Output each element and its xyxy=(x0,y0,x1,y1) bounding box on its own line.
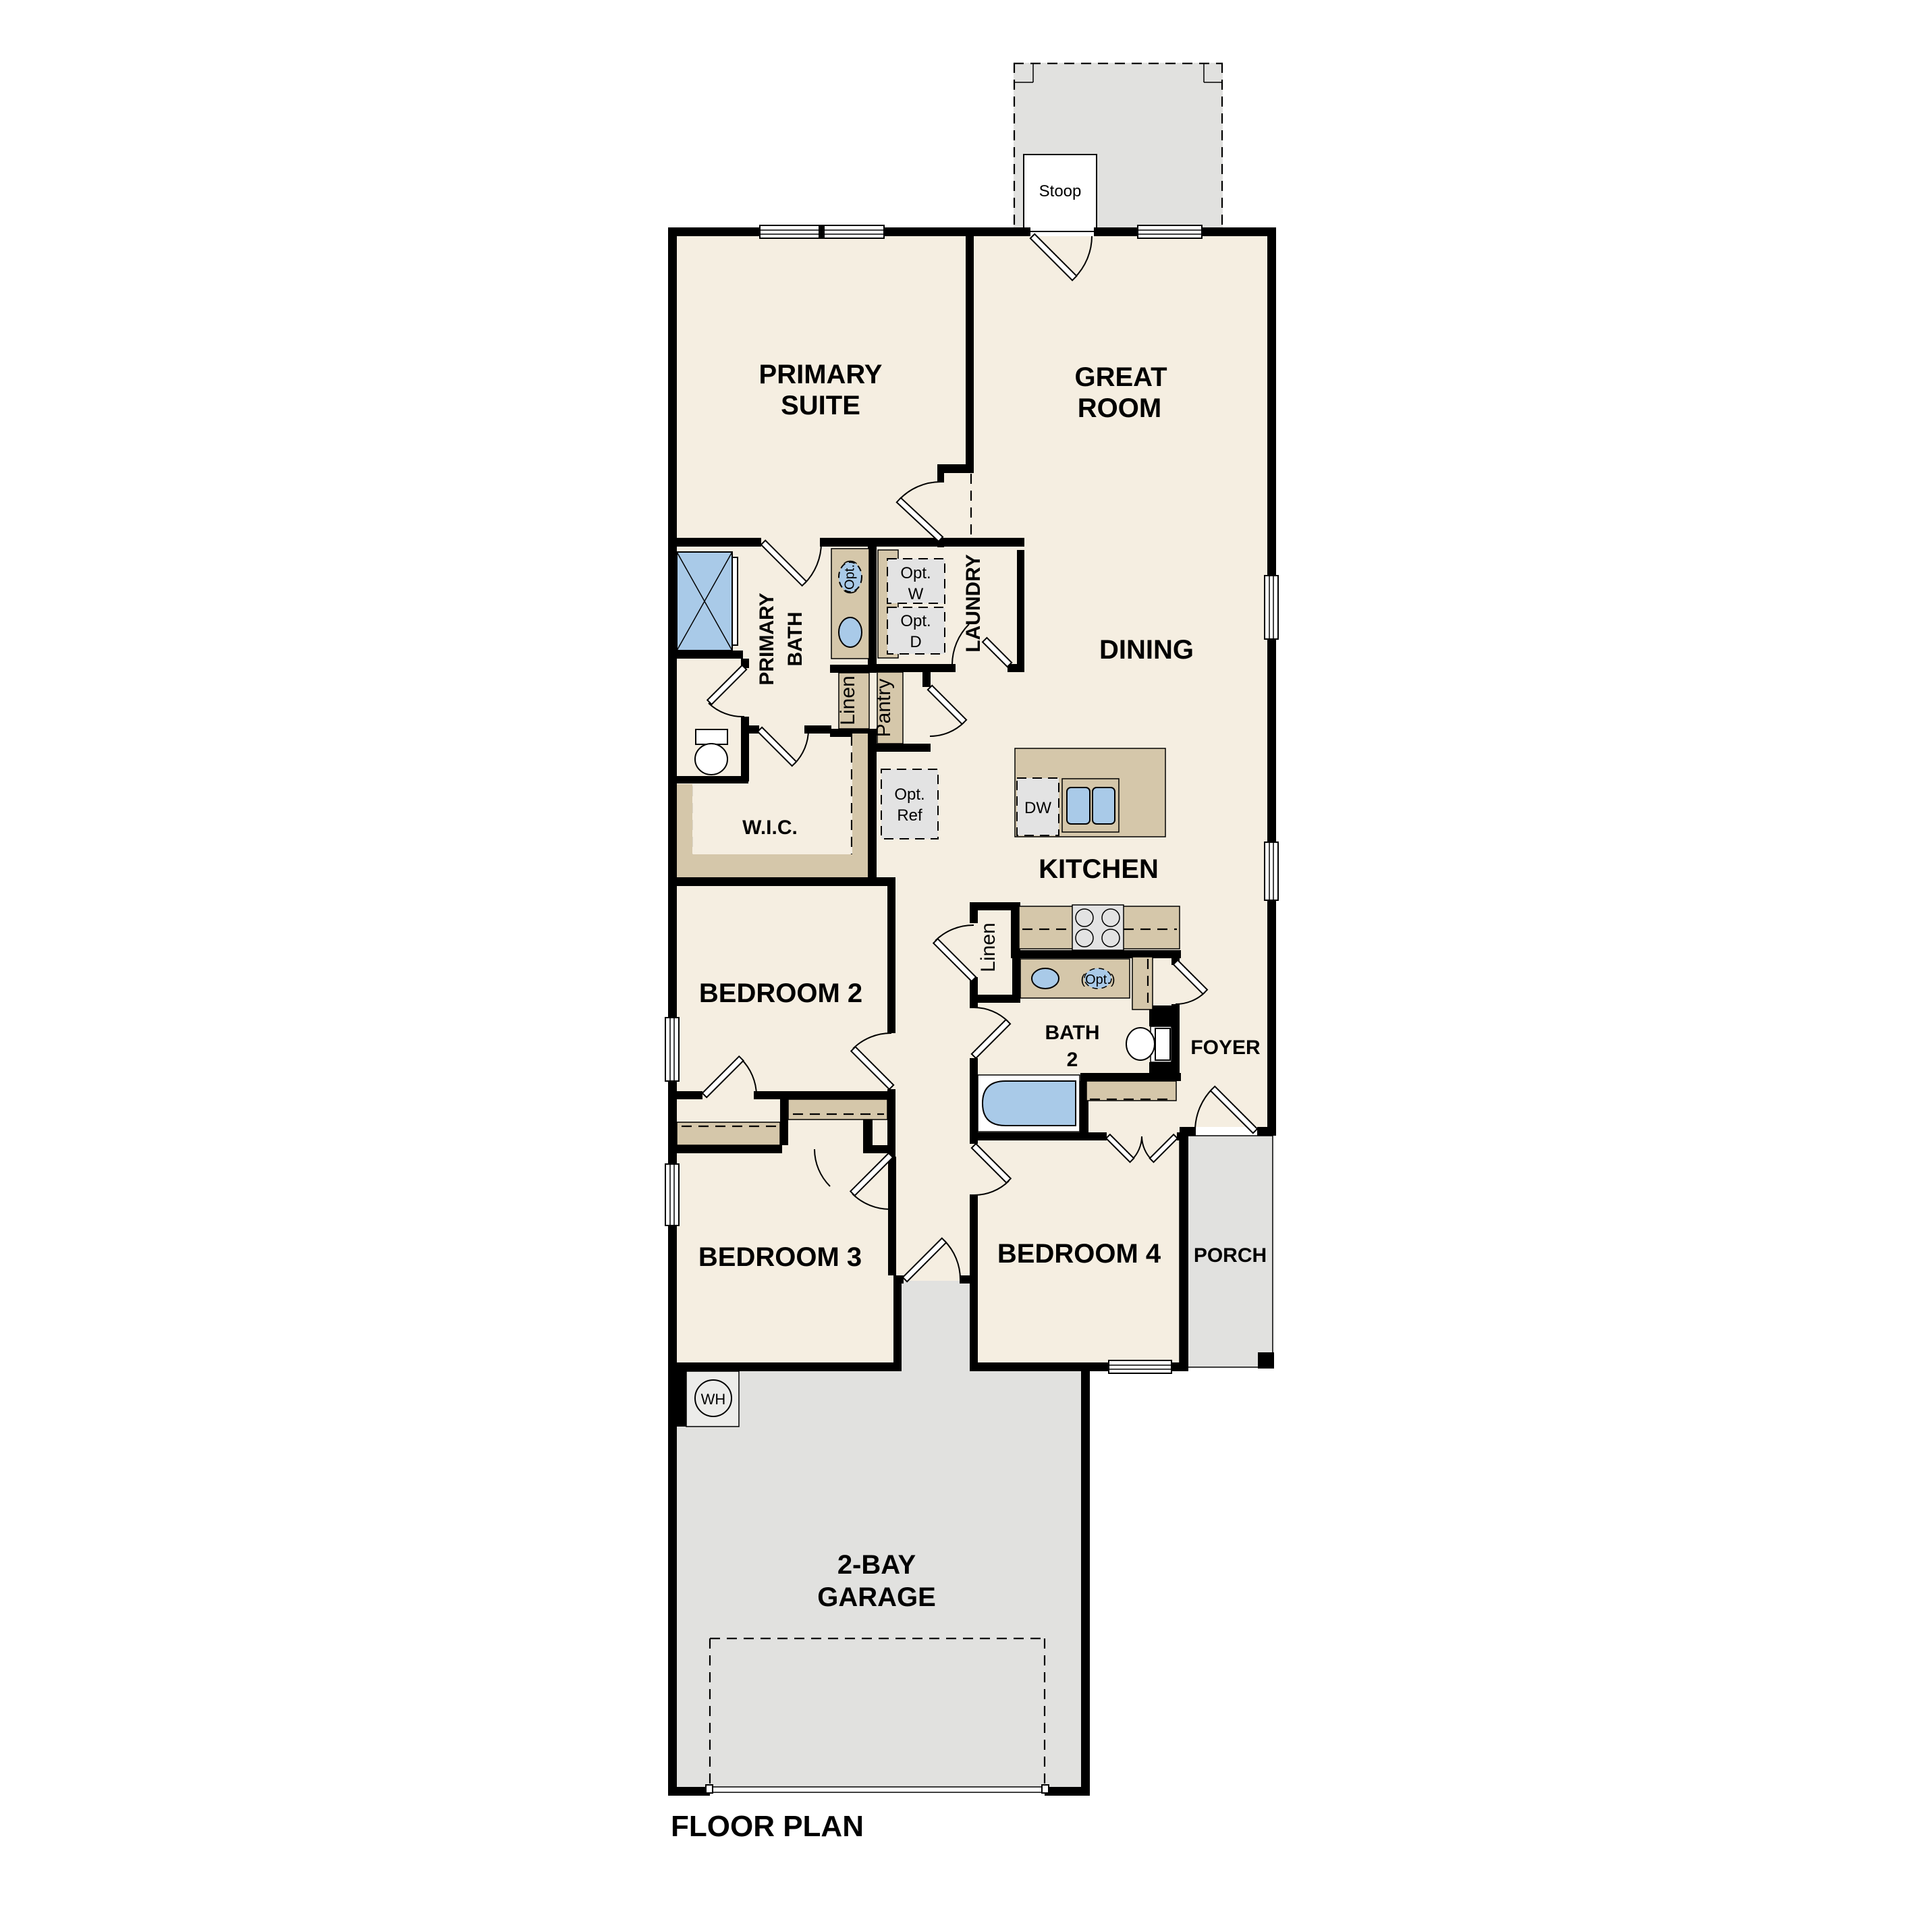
svg-text:LAUNDRY: LAUNDRY xyxy=(962,554,985,653)
svg-text:2-BAY: 2-BAY xyxy=(837,1550,916,1580)
svg-text:(Opt.): (Opt.) xyxy=(1080,972,1115,987)
svg-text:ROOM: ROOM xyxy=(1078,393,1161,423)
svg-text:Linen: Linen xyxy=(837,675,859,725)
svg-text:WH: WH xyxy=(701,1391,726,1408)
svg-text:FLOOR PLAN: FLOOR PLAN xyxy=(671,1810,864,1843)
svg-text:(Opt.): (Opt.) xyxy=(842,559,857,594)
svg-text:BEDROOM 4: BEDROOM 4 xyxy=(997,1239,1161,1269)
svg-text:Linen: Linen xyxy=(977,922,999,972)
svg-text:D: D xyxy=(910,633,921,651)
svg-text:BEDROOM 3: BEDROOM 3 xyxy=(698,1242,862,1272)
svg-text:Opt.: Opt. xyxy=(900,564,931,582)
svg-text:BATH: BATH xyxy=(784,611,806,666)
svg-text:GARAGE: GARAGE xyxy=(817,1582,936,1612)
svg-text:PRIMARY: PRIMARY xyxy=(759,360,883,389)
svg-text:Opt.: Opt. xyxy=(894,785,924,804)
svg-text:W.I.C.: W.I.C. xyxy=(742,817,798,839)
svg-text:Ref: Ref xyxy=(897,806,922,825)
svg-text:PORCH: PORCH xyxy=(1194,1244,1267,1267)
svg-text:W: W xyxy=(908,585,924,603)
svg-text:SUITE: SUITE xyxy=(781,391,860,420)
svg-text:BEDROOM 2: BEDROOM 2 xyxy=(699,978,862,1008)
svg-text:KITCHEN: KITCHEN xyxy=(1039,854,1159,884)
svg-text:BATH: BATH xyxy=(1045,1022,1099,1044)
svg-text:Stoop: Stoop xyxy=(1039,182,1082,200)
svg-text:FOYER: FOYER xyxy=(1190,1037,1261,1059)
svg-text:PRIMARY: PRIMARY xyxy=(756,592,778,685)
svg-text:DINING: DINING xyxy=(1099,635,1194,665)
svg-text:Opt.: Opt. xyxy=(900,612,931,630)
svg-text:2: 2 xyxy=(1067,1049,1078,1071)
svg-text:Pantry: Pantry xyxy=(873,679,895,738)
svg-text:GREAT: GREAT xyxy=(1074,362,1167,392)
svg-text:DW: DW xyxy=(1024,799,1051,817)
